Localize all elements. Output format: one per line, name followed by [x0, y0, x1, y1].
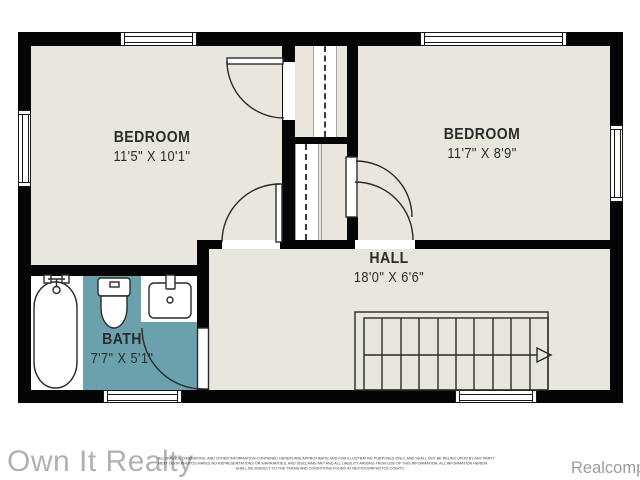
toilet-icon — [98, 278, 130, 328]
door-leaf-closet-top — [227, 58, 283, 64]
door-leaf-bedroom1 — [276, 184, 282, 242]
bath-dimensions: 7'7" X 5'1" — [43, 351, 201, 368]
bedroom2-name: BEDROOM — [403, 126, 561, 144]
door-arc-bedroom2 — [355, 182, 413, 240]
plan-vector-layer — [0, 0, 640, 480]
bath-label: BATH 7'7" X 5'1" — [43, 331, 201, 368]
bedroom2-label: BEDROOM 11'7" X 8'9" — [403, 126, 561, 163]
bedroom1-label: BEDROOM 11'5" X 10'1" — [73, 129, 231, 166]
bedroom1-name: BEDROOM — [73, 129, 231, 147]
hall-dimensions: 18'0" X 6'6" — [310, 270, 468, 287]
stairs-direction-arrow-icon — [537, 348, 551, 362]
door-arc-closet-top — [227, 61, 284, 118]
bedroom1-dimensions: 11'5" X 10'1" — [73, 149, 231, 166]
bedroom2-dimensions: 11'7" X 8'9" — [403, 146, 561, 163]
disclaimer-text: ALL IMAGES, DIMENSIONS, AND OTHER INFORM… — [158, 456, 483, 471]
hall-name: HALL — [310, 250, 468, 268]
disclaimer-line-3: SHALL BE SUBJECT TO THE TERMS AND CONDIT… — [158, 466, 483, 471]
floor-plan-page: BEDROOM 11'5" X 10'1" BEDROOM 11'7" X 8'… — [0, 0, 640, 480]
attribution-text: Realcomp — [571, 459, 640, 478]
door-leaf-closet-bottom — [346, 157, 357, 217]
door-arc-bedroom1 — [222, 184, 280, 242]
bath-name: BATH — [43, 331, 201, 349]
hall-label: HALL 18'0" X 6'6" — [310, 250, 468, 287]
sink-icon — [149, 275, 191, 318]
staircase — [355, 312, 551, 390]
